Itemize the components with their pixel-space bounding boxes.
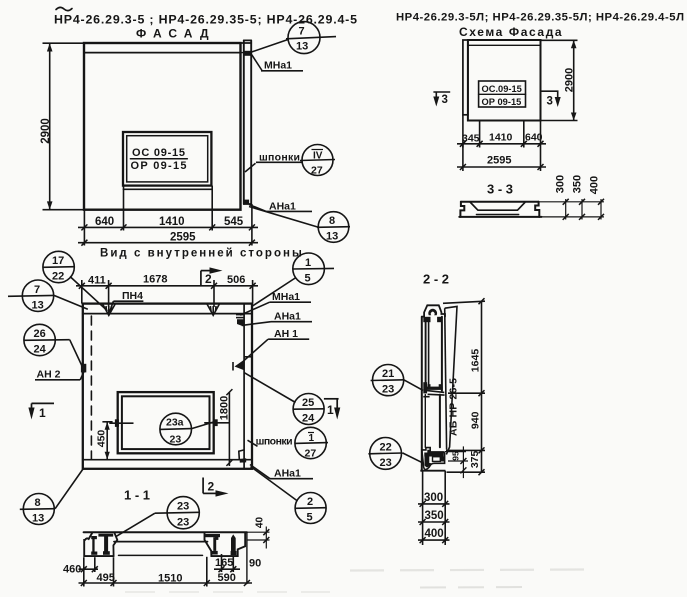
svg-text:13: 13 — [326, 231, 338, 243]
svg-text:22: 22 — [52, 271, 64, 283]
svg-text:ОС 09-15: ОС 09-15 — [132, 147, 185, 159]
svg-text:23: 23 — [170, 434, 182, 446]
svg-text:1: 1 — [305, 257, 311, 269]
svg-text:1645: 1645 — [470, 349, 482, 373]
svg-text:90: 90 — [249, 558, 261, 570]
svg-text:1410: 1410 — [489, 132, 513, 144]
svg-text:22: 22 — [380, 442, 392, 454]
svg-text:ПН4: ПН4 — [122, 290, 143, 302]
svg-text:АНа1: АНа1 — [274, 468, 301, 480]
svg-text:27: 27 — [311, 165, 323, 177]
svg-text:1510: 1510 — [158, 572, 182, 584]
svg-text:506: 506 — [227, 274, 245, 286]
svg-text:ФАСАД: ФАСАД — [136, 27, 212, 41]
svg-text:АБ НР 26-5: АБ НР 26-5 — [448, 378, 460, 436]
svg-text:165: 165 — [215, 557, 233, 569]
svg-text:27: 27 — [305, 448, 317, 460]
svg-text:940: 940 — [470, 411, 482, 429]
svg-text:7: 7 — [34, 284, 40, 296]
svg-text:1678: 1678 — [143, 274, 167, 286]
svg-text:2900: 2900 — [40, 118, 52, 144]
svg-text:2900: 2900 — [564, 68, 576, 92]
svg-text:8: 8 — [329, 215, 335, 227]
svg-text:МНа1: МНа1 — [272, 291, 300, 303]
svg-text:АНа1: АНа1 — [274, 310, 301, 322]
svg-text:1: 1 — [327, 403, 334, 417]
svg-text:2595: 2595 — [487, 155, 511, 167]
svg-text:350: 350 — [425, 510, 444, 522]
svg-text:3: 3 — [442, 94, 448, 106]
svg-text:Вид с внутренней стороны: Вид с внутренней стороны — [100, 248, 304, 260]
svg-text:23: 23 — [177, 501, 189, 513]
svg-text:5: 5 — [307, 512, 313, 524]
svg-text:460: 460 — [63, 564, 81, 576]
svg-text:23: 23 — [380, 457, 392, 469]
svg-text:2: 2 — [208, 480, 215, 494]
svg-text:375: 375 — [469, 450, 481, 468]
svg-text:2-2: 2-2 — [423, 272, 453, 287]
svg-text:23: 23 — [177, 517, 189, 529]
svg-text:IV: IV — [313, 151, 323, 162]
svg-text:АН 2: АН 2 — [37, 369, 61, 381]
svg-text:24: 24 — [302, 413, 315, 425]
svg-text:8: 8 — [35, 497, 41, 509]
svg-text:411: 411 — [88, 274, 106, 286]
svg-text:ОР 09-15: ОР 09-15 — [131, 160, 187, 172]
svg-text:шпонки: шпонки — [256, 436, 293, 448]
svg-text:13: 13 — [32, 300, 44, 312]
svg-text:300: 300 — [555, 175, 567, 193]
svg-text:13: 13 — [32, 513, 44, 525]
svg-text:1: 1 — [309, 433, 315, 444]
svg-text:1800: 1800 — [219, 396, 231, 420]
svg-text:23а: 23а — [166, 417, 184, 429]
svg-text:1: 1 — [39, 406, 46, 420]
svg-text:640: 640 — [525, 132, 543, 144]
svg-text:ОР 09-15: ОР 09-15 — [482, 97, 522, 107]
svg-text:350: 350 — [572, 175, 584, 193]
svg-text:450: 450 — [96, 430, 108, 448]
svg-text:26: 26 — [34, 328, 46, 340]
svg-text:13: 13 — [296, 41, 308, 53]
svg-text:АН 1: АН 1 — [274, 328, 298, 340]
svg-text:24: 24 — [34, 344, 47, 356]
svg-text:545: 545 — [224, 216, 244, 228]
svg-text:17: 17 — [52, 255, 64, 267]
svg-text:400: 400 — [589, 176, 601, 194]
svg-text:400: 400 — [425, 528, 444, 540]
svg-text:3-3: 3-3 — [487, 182, 517, 197]
svg-text:2: 2 — [307, 496, 313, 508]
svg-text:1-1: 1-1 — [124, 488, 154, 503]
svg-text:495: 495 — [97, 572, 115, 584]
svg-text:590: 590 — [218, 572, 236, 584]
svg-text:40: 40 — [255, 517, 266, 529]
svg-text:7: 7 — [299, 26, 305, 38]
svg-text:2595: 2595 — [170, 231, 196, 243]
svg-text:НР4-26.29.3-5Л; НР4-26.29.35-5: НР4-26.29.3-5Л; НР4-26.29.35-5Л; НР4-26.… — [396, 12, 684, 24]
svg-text:3: 3 — [547, 96, 553, 108]
svg-text:Схема Фасада: Схема Фасада — [459, 25, 563, 39]
svg-text:640: 640 — [95, 216, 114, 228]
svg-text:МНа1: МНа1 — [264, 60, 292, 72]
svg-text:21: 21 — [382, 368, 394, 380]
svg-text:2: 2 — [205, 272, 212, 286]
svg-text:300: 300 — [424, 492, 443, 504]
svg-text:шпонки: шпонки — [259, 152, 300, 164]
svg-text:5: 5 — [305, 273, 311, 285]
svg-text:345: 345 — [462, 133, 480, 145]
svg-text:ОС.09-15: ОС.09-15 — [482, 84, 522, 94]
svg-text:23: 23 — [382, 384, 394, 396]
svg-text:1410: 1410 — [159, 216, 185, 228]
svg-text:АНа1: АНа1 — [269, 201, 296, 213]
svg-text:25: 25 — [302, 397, 314, 409]
svg-text:95: 95 — [451, 451, 461, 461]
